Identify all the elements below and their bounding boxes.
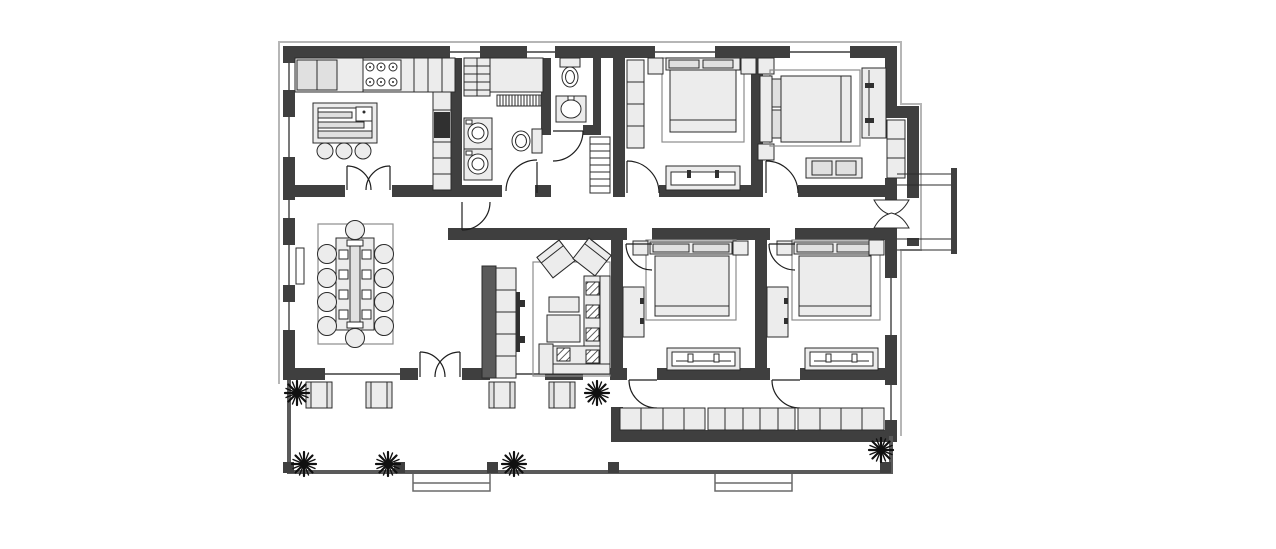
bed	[792, 240, 880, 320]
plant-icon	[292, 452, 316, 476]
plant-icon	[869, 438, 893, 462]
kitchen	[295, 58, 455, 190]
cushion	[586, 328, 599, 341]
stool	[317, 143, 333, 159]
door-swing-icon	[766, 161, 798, 193]
media-wall	[482, 266, 525, 378]
radiator-shoe-cabinet	[590, 137, 610, 193]
double-swing-door-icon	[347, 166, 390, 190]
nightstand	[648, 58, 663, 74]
armchair	[573, 238, 611, 276]
porch-steps	[413, 474, 792, 491]
porch-chair	[306, 382, 332, 408]
window	[450, 46, 480, 58]
closet-row	[620, 408, 884, 430]
laundry-counter	[490, 58, 543, 92]
bed	[646, 240, 736, 320]
dryer-icon	[464, 149, 492, 180]
cooktop-icon	[363, 60, 401, 90]
coffee-table	[549, 297, 579, 312]
door-swing-icon	[506, 160, 537, 193]
dresser	[767, 287, 788, 337]
plant-icon	[376, 452, 400, 476]
window-sill	[296, 248, 304, 284]
kitchen-island	[313, 103, 377, 143]
cushion	[557, 348, 570, 361]
armchair	[537, 240, 575, 278]
window	[283, 117, 295, 157]
door-swing-icon	[629, 380, 657, 408]
window	[283, 200, 295, 218]
bed	[662, 58, 744, 142]
wardrobe	[627, 60, 644, 148]
porch-chair	[549, 382, 575, 408]
plant-icon	[585, 381, 609, 405]
bedroom-1	[627, 58, 756, 193]
dresser	[666, 166, 740, 190]
stool	[336, 143, 352, 159]
washbasin-icon	[556, 96, 586, 122]
desk	[862, 68, 886, 138]
coffee-table	[547, 315, 580, 342]
floor-plan-drawing	[0, 0, 1276, 549]
window	[325, 368, 400, 380]
window	[885, 278, 897, 335]
wc	[553, 58, 586, 161]
nightstand	[758, 58, 774, 74]
bench	[805, 348, 878, 370]
tv-icon	[516, 292, 520, 352]
nightstand	[869, 240, 884, 255]
kitchen-tall-cabinet	[433, 92, 451, 190]
built-in-oven	[434, 112, 450, 138]
door-swing-icon	[462, 202, 490, 230]
bench	[667, 348, 740, 370]
side-door-opening	[907, 198, 919, 238]
porch-chair	[489, 382, 515, 408]
plant-icon	[285, 381, 309, 405]
cushion	[586, 305, 599, 318]
window	[885, 385, 897, 420]
bedroom-4	[767, 240, 884, 408]
dining-room	[318, 221, 394, 348]
window	[283, 63, 295, 90]
porch-chair	[366, 382, 392, 408]
side-landing	[897, 168, 957, 254]
window	[655, 46, 715, 58]
corner-wardrobe	[887, 120, 905, 178]
door-swing-icon	[772, 380, 800, 408]
stool	[355, 143, 371, 159]
door-swing-icon	[553, 131, 583, 161]
table-runner	[350, 246, 360, 322]
nightstand	[733, 241, 748, 255]
bedroom-2	[758, 58, 905, 193]
double-acting-door-icon	[874, 200, 909, 228]
bench	[806, 158, 862, 178]
bedroom-3	[623, 240, 748, 408]
toilet-icon	[512, 129, 542, 153]
door-swing-icon	[627, 161, 659, 193]
landing-edge	[951, 168, 957, 254]
wardrobe-hallway	[620, 408, 884, 430]
radiator-icon	[497, 95, 541, 106]
cushion	[586, 282, 599, 295]
nightstand	[777, 241, 792, 255]
plant-icon	[502, 452, 526, 476]
window	[283, 302, 295, 330]
washer-icon	[464, 118, 492, 149]
nightstand	[741, 58, 756, 74]
utility-laundry	[464, 58, 543, 193]
dresser	[623, 287, 644, 337]
entrance-opening	[418, 368, 462, 380]
nightstand	[633, 241, 648, 255]
window	[527, 46, 555, 58]
bed	[760, 70, 860, 146]
shelving-unit	[464, 58, 490, 96]
toilet-icon	[560, 58, 580, 87]
window	[283, 245, 295, 285]
cushion	[586, 350, 599, 363]
window	[790, 46, 850, 58]
living-room	[482, 238, 611, 378]
island-sink	[356, 107, 372, 121]
floor-plan-page	[0, 0, 1276, 549]
